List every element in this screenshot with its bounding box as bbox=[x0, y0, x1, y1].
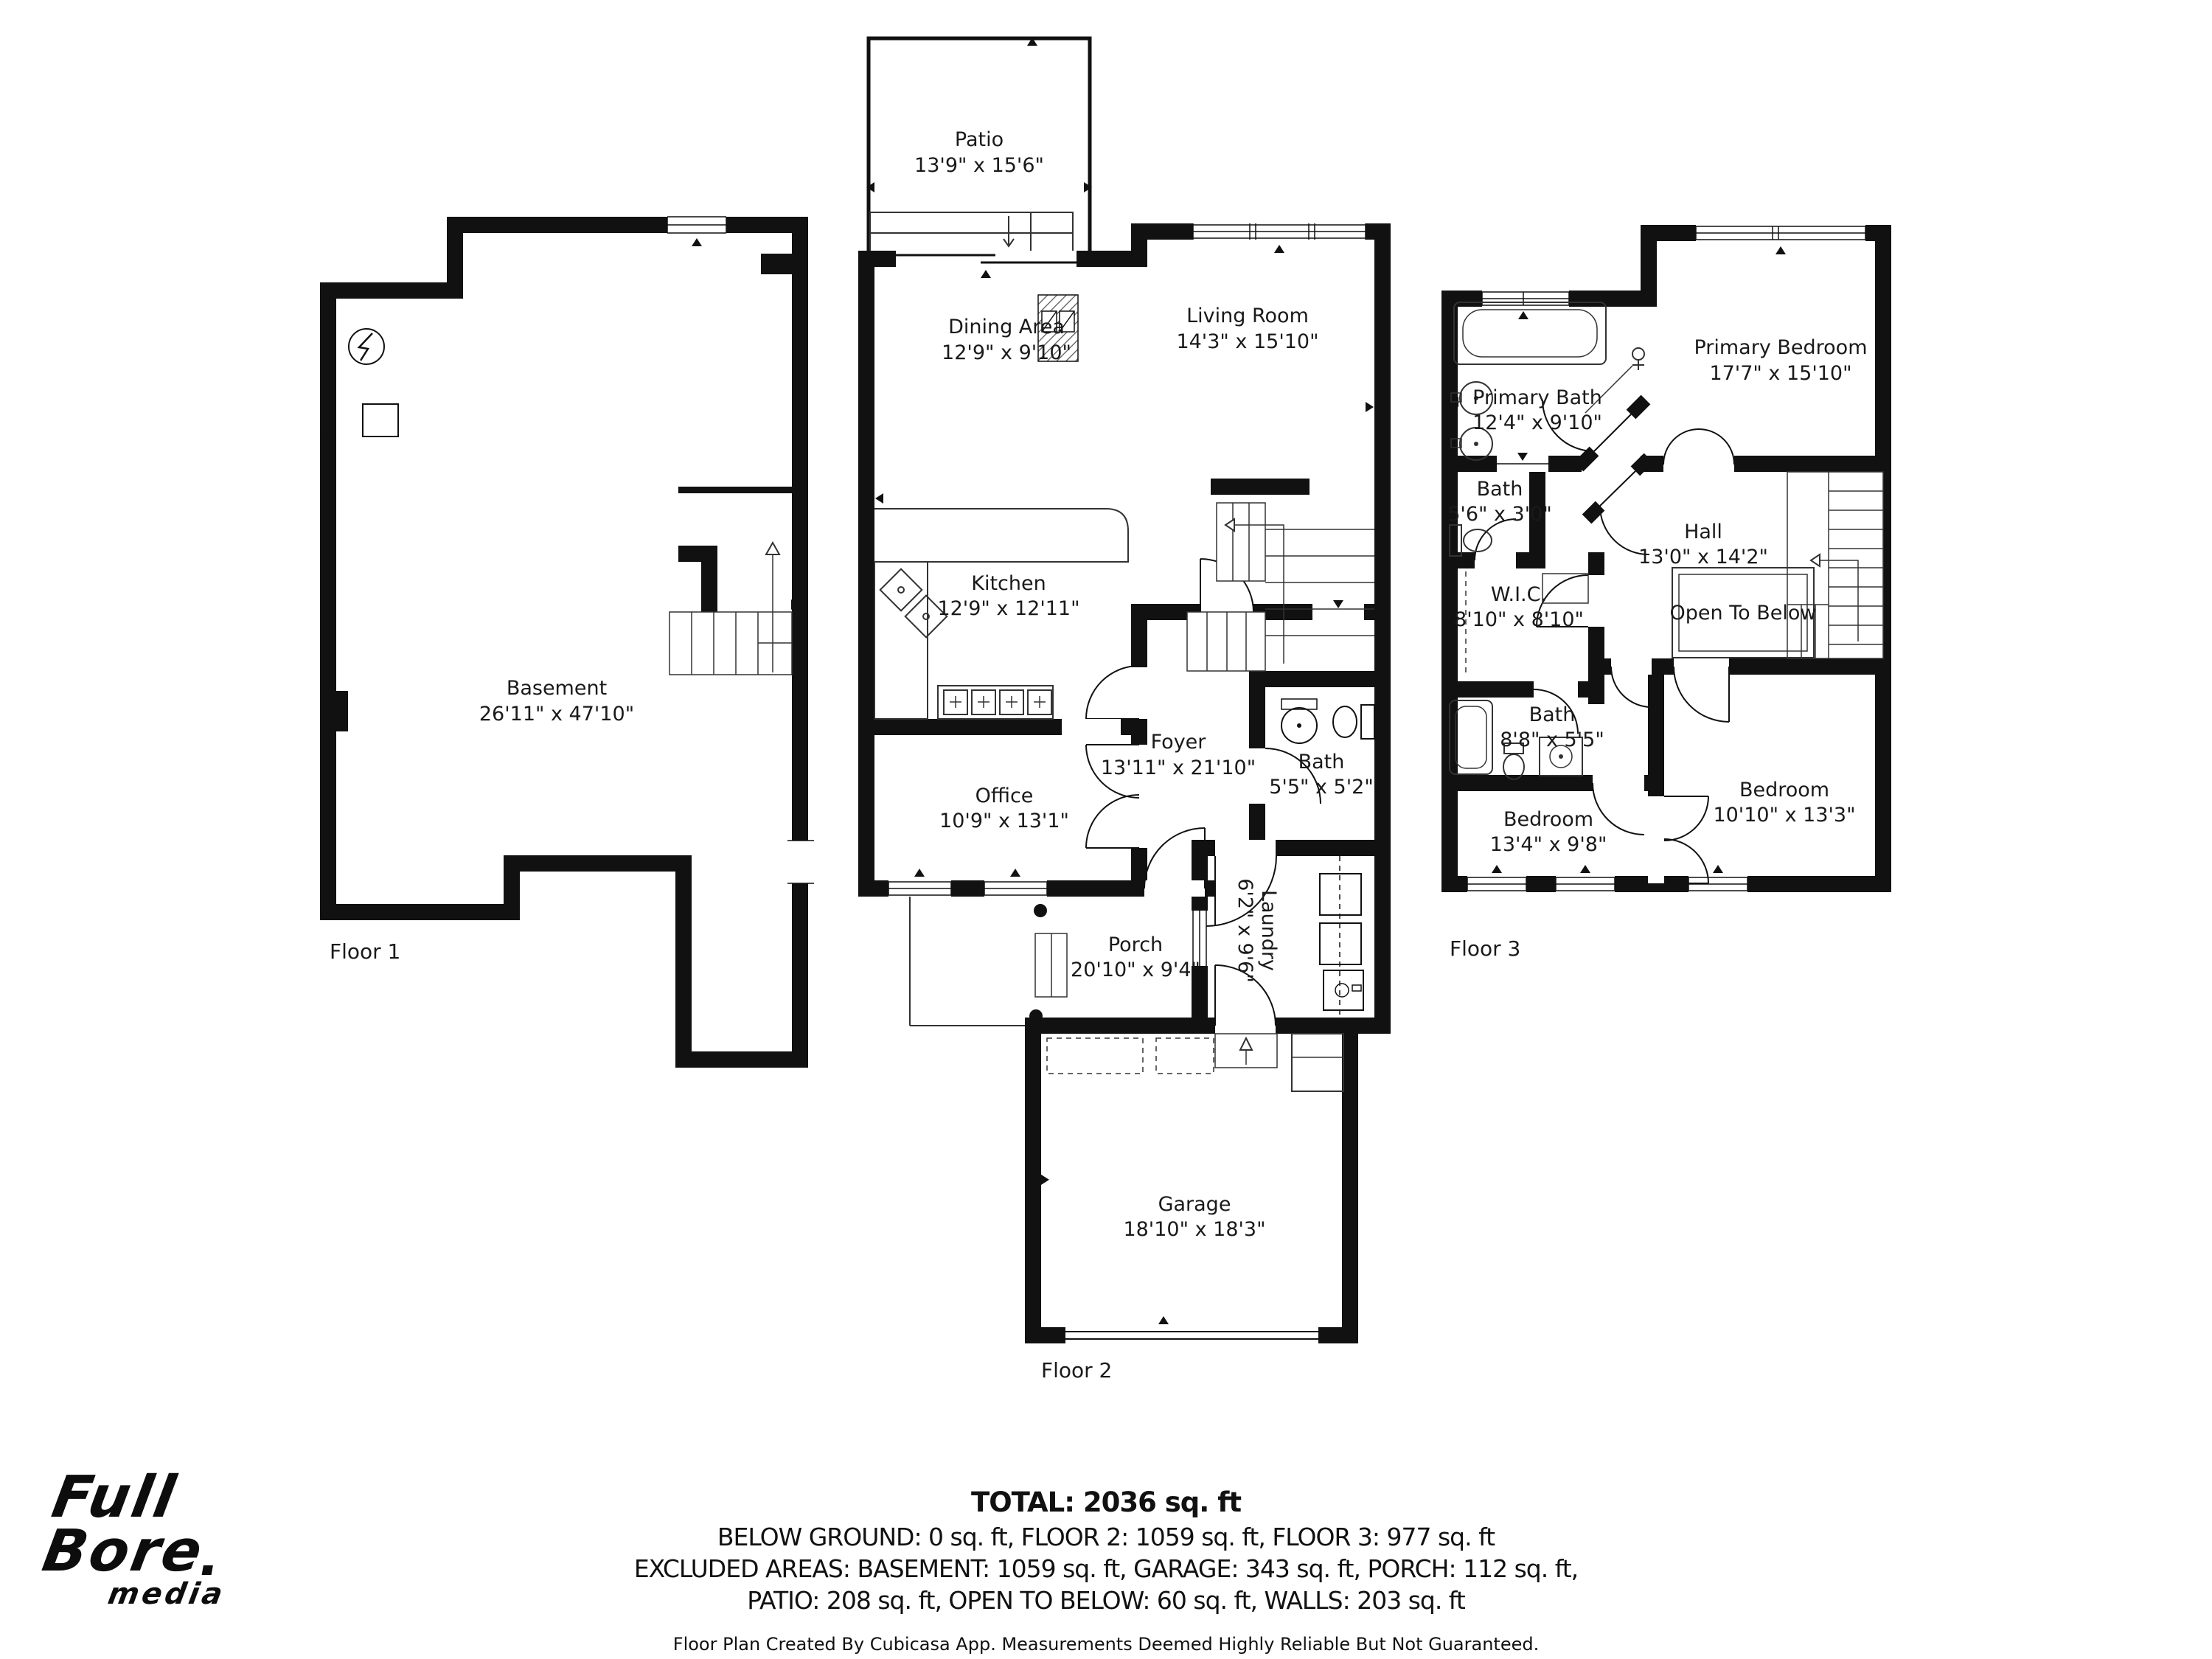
room-label-dining: Dining Area bbox=[948, 316, 1065, 338]
laundry-appliances bbox=[1320, 856, 1363, 1026]
room-label-office: Office bbox=[975, 785, 1034, 807]
floor-areas-text: BELOW GROUND: 0 sq. ft, FLOOR 2: 1059 sq… bbox=[0, 1523, 2212, 1551]
room-dims-primary-bedroom: 17'7" x 15'10" bbox=[1709, 362, 1851, 385]
room-dims-laundry: 6'2" x 9'6" bbox=[1234, 878, 1256, 983]
room-label-living: Living Room bbox=[1186, 305, 1309, 327]
room-dims-dining: 12'9" x 9'10" bbox=[942, 341, 1071, 364]
room-label-primary-bath: Primary Bath bbox=[1472, 386, 1602, 409]
disclaimer-text: Floor Plan Created By Cubicasa App. Meas… bbox=[0, 1634, 2212, 1655]
porch bbox=[910, 897, 1067, 1026]
room-dims-hall: 13'0" x 14'2" bbox=[1638, 546, 1768, 568]
room-label-kitchen: Kitchen bbox=[971, 572, 1046, 595]
garage-interior bbox=[1047, 1034, 1343, 1091]
excluded-areas-text: EXCLUDED AREAS: BASEMENT: 1059 sq. ft, G… bbox=[0, 1554, 2212, 1583]
room-label-primary-bedroom: Primary Bedroom bbox=[1694, 336, 1867, 359]
floor-3-label: Floor 3 bbox=[1450, 936, 1520, 961]
room-label-garage: Garage bbox=[1158, 1193, 1231, 1216]
floor-3-plan: Primary Bath 12'4" x 9'10" Primary Bedro… bbox=[1441, 225, 1883, 961]
floor-2-label: Floor 2 bbox=[1041, 1358, 1112, 1382]
room-label-open-to-below: Open To Below bbox=[1670, 602, 1817, 625]
room-dims-bedroom-1010: 10'10" x 13'3" bbox=[1713, 804, 1855, 827]
room-label-bath2: Bath bbox=[1298, 751, 1345, 773]
floor-3-stairs bbox=[1787, 472, 1883, 658]
room-dims-bath-88: 8'8" x 5'5" bbox=[1500, 728, 1604, 751]
room-label-wic: W.I.C. bbox=[1491, 583, 1547, 606]
room-dims-bath-small: 5'6" x 3'0" bbox=[1447, 503, 1552, 526]
area-summary: TOTAL: 2036 sq. ft BELOW GROUND: 0 sq. f… bbox=[0, 1486, 2212, 1655]
room-label-bath-small: Bath bbox=[1477, 478, 1523, 501]
room-dims-living: 14'3" x 15'10" bbox=[1176, 330, 1318, 353]
room-dims-primary-bath: 12'4" x 9'10" bbox=[1472, 411, 1602, 434]
floor-2-bath-fixtures bbox=[1281, 699, 1374, 743]
room-dims-porch: 20'10" x 9'4" bbox=[1071, 959, 1200, 981]
room-label-hall: Hall bbox=[1684, 521, 1722, 543]
floor-plan-drawing: Basement 26'11" x 47'10" Floor 1 Patio 1… bbox=[0, 0, 2212, 1659]
room-label-laundry: Laundry bbox=[1257, 890, 1280, 971]
room-dims-kitchen: 12'9" x 12'11" bbox=[937, 597, 1079, 620]
excluded-areas-text-2: PATIO: 208 sq. ft, OPEN TO BELOW: 60 sq.… bbox=[0, 1586, 2212, 1615]
room-dims-basement: 26'11" x 47'10" bbox=[479, 703, 634, 726]
room-label-bath-88: Bath bbox=[1529, 703, 1576, 726]
room-label-basement: Basement bbox=[507, 677, 607, 700]
room-dims-garage: 18'10" x 18'3" bbox=[1123, 1218, 1265, 1241]
room-label-bedroom-1010: Bedroom bbox=[1739, 779, 1829, 801]
room-label-porch: Porch bbox=[1108, 933, 1163, 956]
patio: Patio 13'9" x 15'6" bbox=[866, 38, 1092, 253]
floor-1-plan: Basement 26'11" x 47'10" Floor 1 bbox=[320, 209, 814, 1060]
floor-2-plan: Patio 13'9" x 15'6" bbox=[858, 38, 1391, 1382]
floor-2-stairs bbox=[1187, 503, 1374, 671]
floor-plan-page: Basement 26'11" x 47'10" Floor 1 Patio 1… bbox=[0, 0, 2212, 1659]
room-dims-bedroom-134: 13'4" x 9'8" bbox=[1490, 833, 1607, 856]
room-label-patio: Patio bbox=[955, 128, 1004, 151]
room-dims-patio: 13'9" x 15'6" bbox=[914, 154, 1044, 177]
basement-window bbox=[667, 209, 726, 246]
room-dims-bath2: 5'5" x 5'2" bbox=[1269, 776, 1374, 799]
room-label-bedroom-134: Bedroom bbox=[1503, 808, 1593, 831]
floor-1-label: Floor 1 bbox=[330, 939, 400, 964]
room-dims-wic: 8'10" x 8'10" bbox=[1454, 608, 1584, 631]
room-dims-office: 10'9" x 13'1" bbox=[939, 810, 1069, 832]
total-area-text: TOTAL: 2036 sq. ft bbox=[0, 1486, 2212, 1518]
room-dims-foyer: 13'11" x 21'10" bbox=[1101, 757, 1256, 779]
room-label-foyer: Foyer bbox=[1151, 731, 1207, 754]
